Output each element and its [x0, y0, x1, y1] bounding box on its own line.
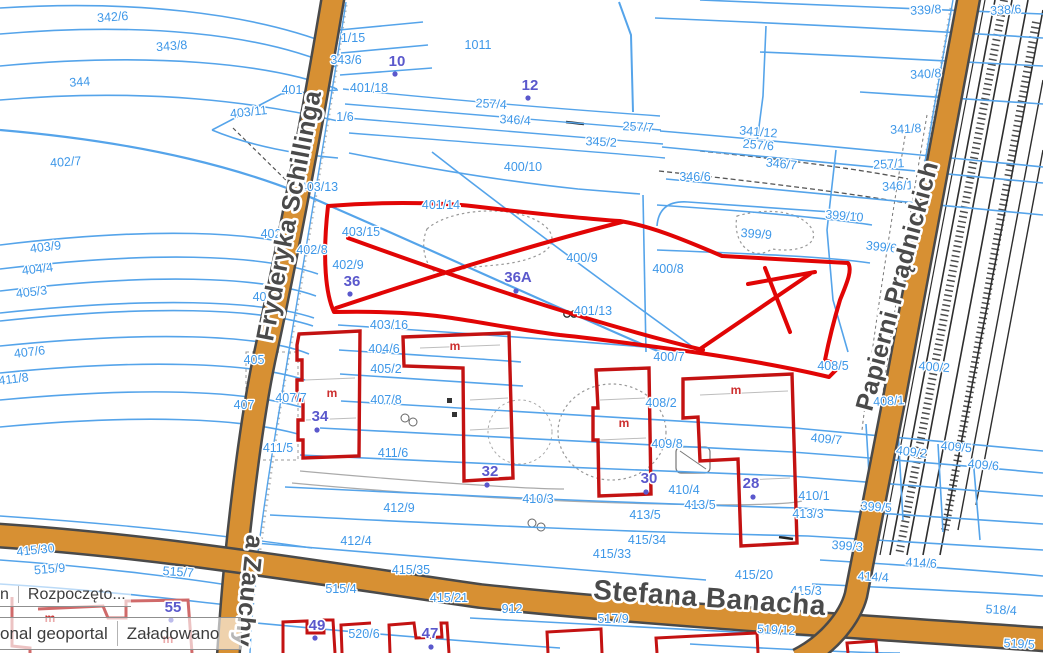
- parcel-label: 415/35: [392, 563, 430, 577]
- parcel-label: 343/8: [156, 38, 188, 54]
- parcel-label: 1/6: [336, 110, 353, 124]
- parcel-label: 520/6: [348, 627, 379, 641]
- building-number-dot: [484, 482, 489, 487]
- parcel-label: 412/4: [340, 534, 371, 548]
- parcel-label: 413/5: [629, 508, 660, 522]
- building-number-dot: [513, 288, 518, 293]
- parcel-label: 257/1: [873, 156, 905, 172]
- parcel-label: 410/1: [798, 489, 829, 503]
- parcel-label: 415/20: [735, 568, 773, 582]
- parcel-label: 515/4: [325, 582, 356, 596]
- parcel-label: 405/2: [370, 362, 401, 376]
- parcel-label: 401/14: [422, 198, 460, 212]
- parcel-label: 415/33: [593, 547, 631, 561]
- building-number: 36: [344, 273, 361, 290]
- parcel-label: 405: [244, 353, 265, 367]
- parcel-label: 519/12: [757, 622, 796, 638]
- parcel-label: 415/34: [628, 533, 666, 547]
- parcel-label: 339/8: [910, 2, 942, 18]
- parcel-label: 338/6: [990, 2, 1022, 18]
- building-47-outline: [389, 623, 449, 653]
- parcel-label: 342/6: [97, 9, 129, 25]
- building-number-dot: [312, 635, 317, 640]
- house-mark: m: [327, 386, 338, 400]
- building-number-dot: [428, 644, 433, 649]
- parcel-label: 403/16: [370, 318, 408, 332]
- map-canvas[interactable]: 342/6343/8344402/7403/11403/9404/4405/34…: [0, 0, 1043, 653]
- parcel-label: 403/15: [342, 225, 380, 239]
- parcel-label: 515/9: [33, 561, 65, 578]
- status-toast-start: n Rozpoczęto...: [0, 583, 131, 607]
- parcel-label: 400/9: [566, 251, 597, 265]
- parcel-label: 1011: [465, 38, 492, 52]
- parcel-label: 402/8: [296, 243, 327, 257]
- building-number-dot: [347, 291, 352, 296]
- parcel-label: 404/4: [21, 260, 54, 278]
- building-number: 47: [422, 625, 439, 642]
- parcel-label: 410/3: [522, 492, 553, 506]
- building-number-dot: [392, 71, 397, 76]
- building-number: 30: [641, 470, 658, 487]
- parcel-label: 400/2: [918, 359, 950, 375]
- building-number: 49: [309, 617, 326, 634]
- parcel-label: 409/6: [967, 457, 999, 474]
- parcel-label: 407: [234, 398, 255, 412]
- parcel-label: 411/5: [263, 441, 293, 455]
- parcel-label: 401/18: [350, 81, 388, 95]
- building-number: 55: [165, 599, 182, 616]
- parcel-label: 405/3: [15, 283, 48, 301]
- parcel-label: 400/10: [504, 160, 542, 174]
- parcel-label: 519/5: [1003, 636, 1035, 652]
- parcel-label: 399/9: [740, 226, 772, 242]
- status-text-fragment: n: [0, 586, 9, 604]
- parcel-label: 399/3: [831, 538, 863, 554]
- building-number-dot: [643, 489, 648, 494]
- status-text: Załadowano: [127, 624, 220, 644]
- parcel-label: 408/5: [817, 359, 848, 373]
- parcel-label: 403/9: [29, 238, 62, 256]
- street-name-label: Fryderyka Schillinga: [251, 87, 327, 343]
- status-toast-loaded: onal geoportal Załadowano: [0, 617, 241, 650]
- parcel-label: 414/6: [905, 555, 937, 571]
- status-text: Rozpoczęto...: [28, 586, 126, 604]
- parcel-label: 257/4: [475, 96, 507, 112]
- parcel-label: 408/2: [645, 396, 676, 410]
- building-number-dot: [750, 494, 755, 499]
- parcel-label: 411/6: [378, 446, 408, 460]
- building-number: 36A: [504, 269, 532, 286]
- parcel-label: 346/7: [765, 155, 798, 172]
- house-mark: m: [619, 416, 630, 430]
- parcel-label: 414/4: [857, 569, 889, 585]
- parcel-label: 407/6: [13, 343, 46, 361]
- parcel-label: 399/5: [860, 499, 892, 515]
- parcel-label: 415/30: [16, 541, 56, 559]
- parcel-label: 409/7: [810, 431, 842, 448]
- parcel-label: 257/7: [622, 119, 654, 135]
- parcel-label: 1/15: [341, 31, 365, 45]
- parcel-label: 257/6: [742, 137, 774, 154]
- parcel-label: 409/8: [651, 437, 682, 451]
- building-number-dot: [525, 95, 530, 100]
- map-viewport[interactable]: 342/6343/8344402/7403/11403/9404/4405/34…: [0, 0, 1043, 653]
- building-number-dot: [314, 427, 319, 432]
- parcel-label: 410/4: [668, 483, 699, 497]
- parcel-label: 343/6: [330, 53, 361, 67]
- parcel-label: 344: [69, 74, 91, 89]
- building-number: 32: [482, 463, 499, 480]
- building-number: 10: [389, 53, 406, 70]
- house-mark: m: [450, 339, 461, 353]
- parcel-label: 411/8: [0, 370, 29, 388]
- parcel-label: 341/8: [890, 121, 922, 137]
- parcel-label: 407/8: [370, 393, 401, 407]
- parcel-label: 403/11: [229, 103, 268, 121]
- building-number: 28: [743, 475, 760, 492]
- parcel-label: 413/3: [792, 507, 823, 521]
- parcel-label: 515/7: [162, 564, 194, 580]
- parcel-label: 518/4: [985, 602, 1017, 618]
- parcel-label: 399/10: [825, 207, 864, 224]
- parcel-label: 409/5: [940, 439, 972, 456]
- toast-separator: [18, 586, 19, 603]
- parcel-label: 415/21: [430, 591, 468, 605]
- status-text-fragment: onal geoportal: [0, 624, 108, 644]
- parcel-label: 402/9: [332, 258, 363, 272]
- parcel-label: 912: [502, 602, 523, 616]
- parcel-label: 346/4: [499, 112, 531, 128]
- building-number: 34: [312, 408, 329, 425]
- parcel-label: 413/5: [684, 498, 715, 512]
- parcel-label: 402/7: [50, 154, 82, 170]
- house-mark: m: [731, 383, 742, 397]
- parcel-label: 517/9: [597, 612, 628, 626]
- parcel-label: 404/6: [368, 342, 399, 356]
- parcel-label: 412/9: [383, 501, 414, 515]
- toast-separator: [117, 621, 118, 646]
- parcel-label: 401/13: [574, 304, 612, 318]
- building-28-outline: [683, 374, 797, 546]
- parcel-label: 345/2: [585, 134, 617, 150]
- building-number: 12: [522, 77, 539, 94]
- parcel-label: 346/6: [679, 170, 710, 184]
- parcel-label: 400/7: [653, 350, 684, 364]
- parcel-label: 340/8: [910, 66, 942, 82]
- parcel-label: 400/8: [652, 262, 683, 276]
- parcel-label: 407/7: [275, 391, 306, 405]
